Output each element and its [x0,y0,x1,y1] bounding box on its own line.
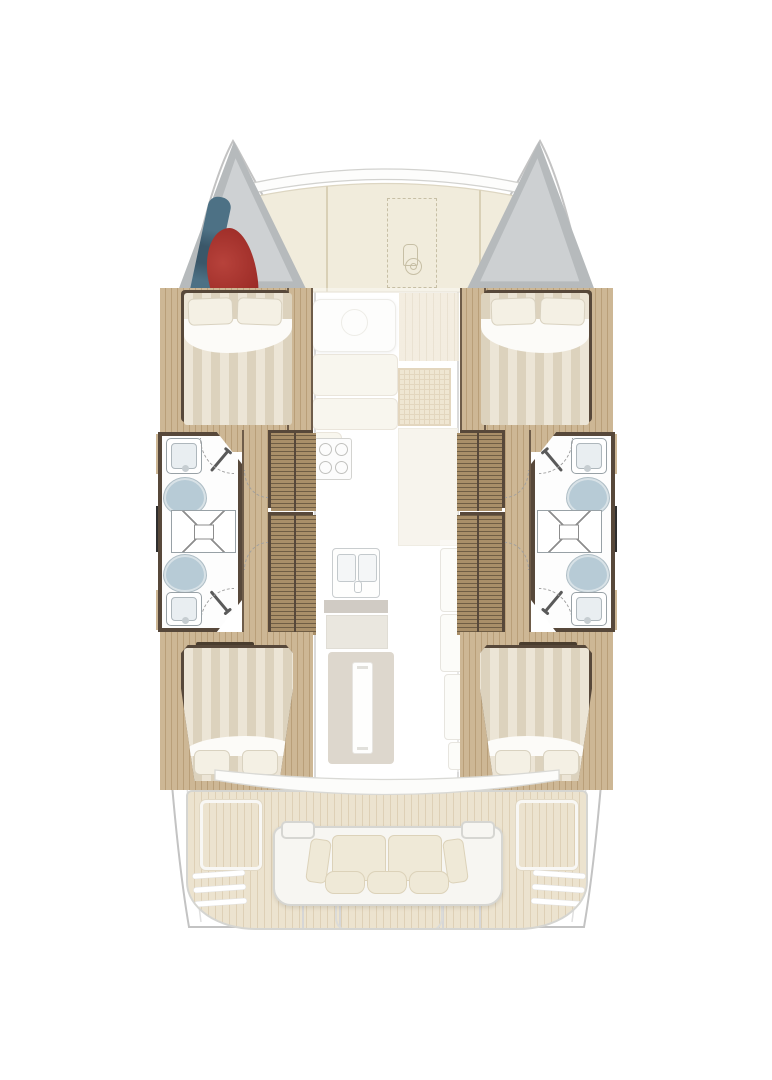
salon-aft-wall [215,770,559,795]
aft-wall-layer [0,0,772,1080]
catamaran-floor-plan [0,0,772,1080]
